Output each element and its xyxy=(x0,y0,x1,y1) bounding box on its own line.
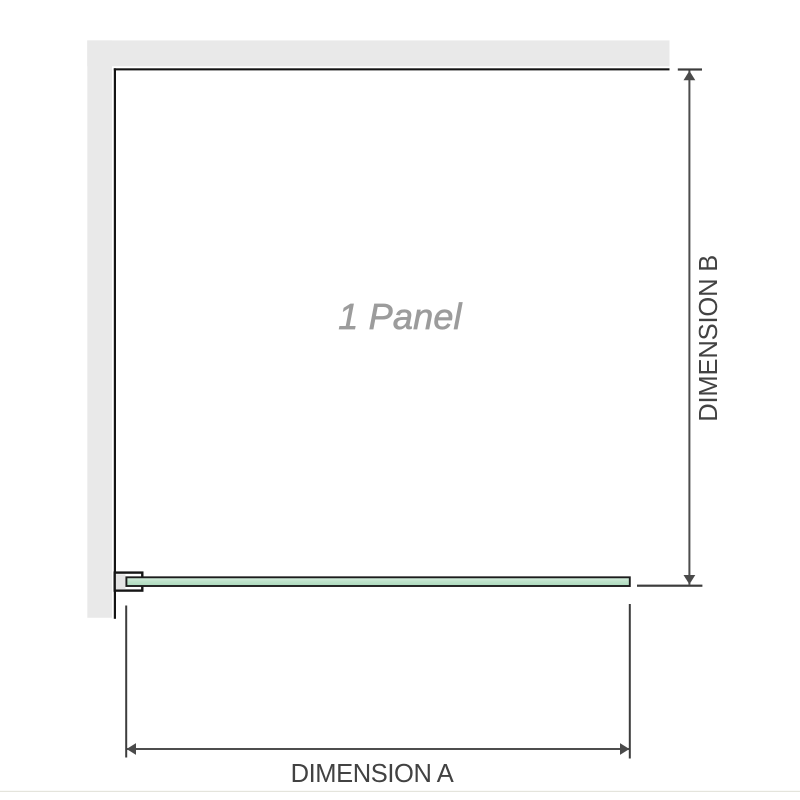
svg-text:DIMENSION B: DIMENSION B xyxy=(695,255,723,422)
svg-text:DIMENSION A: DIMENSION A xyxy=(291,760,454,788)
svg-text:1 Panel: 1 Panel xyxy=(338,296,462,337)
